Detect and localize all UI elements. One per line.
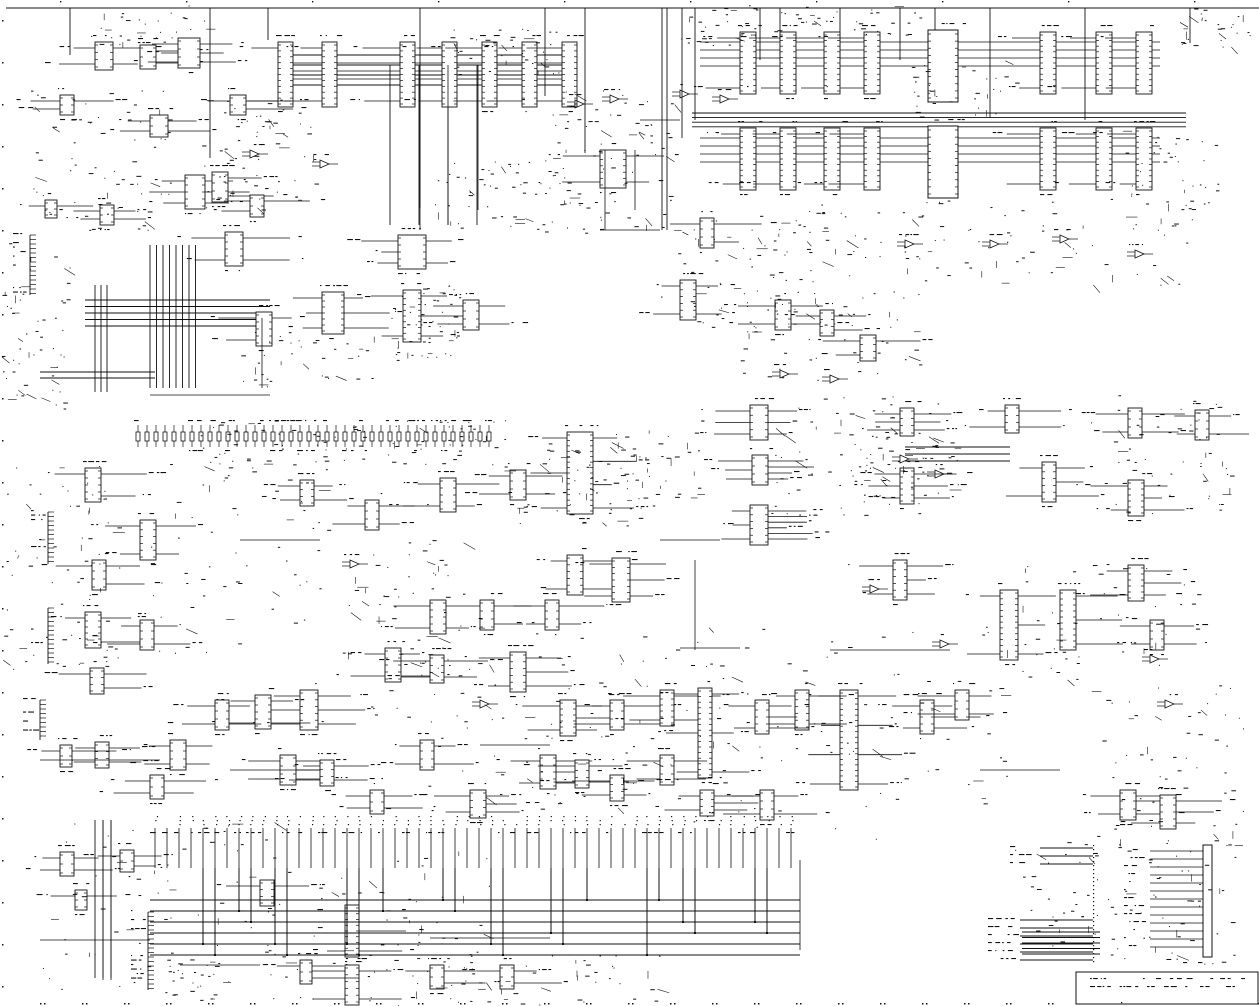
resistor-row <box>134 420 492 451</box>
io-connector-stubs <box>988 845 1094 962</box>
dip-row-array <box>240 23 1160 198</box>
edge-connector <box>1124 845 1212 963</box>
ic <box>16 35 1249 1006</box>
schematic-canvas <box>0 0 1259 1006</box>
schematic-page <box>0 0 1259 1006</box>
connector-column <box>13 233 154 990</box>
page-border <box>2 1 1259 1005</box>
title-block <box>1076 972 1258 1004</box>
